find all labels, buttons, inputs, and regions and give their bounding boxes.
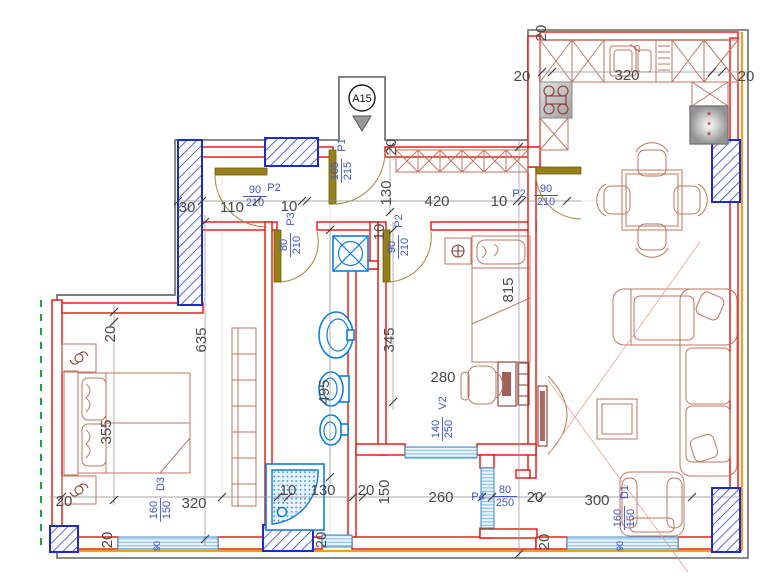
unit-label: A15	[352, 93, 372, 105]
dim-hall-wall: 30	[179, 199, 196, 216]
svg-text:105: 105	[329, 162, 341, 180]
svg-text:90: 90	[540, 183, 552, 195]
dimension-labels: 30 110 10 20 130 420 10 20 20 320 20 815…	[56, 25, 755, 551]
coffee-table	[597, 399, 637, 439]
dim-hall-gap2: 10	[491, 193, 508, 210]
svg-text:D1: D1	[619, 485, 631, 499]
desk	[498, 362, 516, 406]
dim-balcony-depth: 150	[376, 479, 393, 504]
dim-bath-jamb: 10	[280, 482, 297, 499]
svg-text:P2: P2	[512, 188, 525, 200]
dim-bedroom-wall: 20	[102, 326, 119, 343]
sofa-pillow	[689, 433, 719, 463]
svg-text:250: 250	[496, 497, 514, 509]
window-d3	[118, 537, 218, 549]
dining-chair	[597, 143, 708, 258]
dim-bedroom2-width: 280	[430, 369, 455, 386]
living-column-top	[712, 140, 740, 202]
dim-corridor-len: 635	[193, 327, 210, 352]
window-v2	[405, 447, 477, 458]
svg-text:210: 210	[246, 197, 264, 209]
svg-text:D3: D3	[155, 477, 167, 491]
svg-text:140: 140	[430, 420, 442, 438]
kitchen: * * *	[540, 40, 738, 150]
bathroom-sink	[319, 312, 354, 358]
svg-text:150: 150	[625, 509, 637, 527]
svg-text:90: 90	[249, 184, 261, 196]
dim-hall-seg: 110	[220, 199, 244, 216]
bidet	[320, 415, 348, 445]
svg-text:P1: P1	[336, 138, 348, 151]
svg-text:210: 210	[399, 238, 411, 256]
dim-kitchen-right: 20	[738, 68, 755, 85]
label-door-p2-corridor: 90 210 P2	[243, 182, 281, 209]
entry-sign: A15	[339, 77, 385, 140]
dim-balcony-width: 260	[428, 489, 453, 506]
corner-sofa	[613, 289, 737, 476]
dim-bath-wall: 20	[358, 482, 375, 499]
entry-shaft-column	[265, 138, 318, 166]
dim-hall-width: 130	[378, 180, 395, 205]
bedroom2	[445, 236, 530, 406]
svg-text:160: 160	[148, 501, 160, 519]
stove	[540, 82, 572, 118]
living-corner-column	[712, 488, 740, 552]
svg-text:90: 90	[386, 241, 398, 253]
dish-rack	[658, 46, 670, 70]
svg-text:*: *	[707, 130, 712, 142]
svg-text:150: 150	[161, 501, 173, 519]
dim-bedroom2-jamb: 10	[371, 224, 388, 241]
hall-wall-column	[178, 140, 202, 305]
dim-kitchen-left: 20	[514, 68, 531, 85]
dim-entry-wall: 20	[383, 139, 400, 156]
tv-sightline	[548, 242, 700, 455]
new-walls	[52, 32, 738, 549]
living-room	[538, 242, 737, 572]
dim-living-len: 815	[500, 277, 517, 302]
dim-shower-width: 130	[310, 482, 335, 499]
svg-text:80: 80	[278, 239, 290, 251]
fridge: * * *	[690, 106, 728, 144]
dim-bedroom2-len: 345	[381, 327, 398, 352]
tv	[538, 376, 567, 454]
dim-hall-len: 420	[424, 193, 449, 210]
washing-machine	[333, 236, 368, 271]
svg-text:V2: V2	[437, 396, 449, 409]
dim-living-win-jamb: 20	[536, 534, 553, 551]
dim-living-jamb: 20	[527, 489, 544, 506]
svg-text:P4: P4	[471, 491, 484, 503]
dim-bedroom-win-jamb: 20	[99, 532, 116, 549]
label-d1-sill: 90	[615, 541, 625, 551]
svg-text:P3: P3	[285, 212, 297, 225]
nightstand	[62, 344, 96, 372]
label-door-p3: 80 210 P3	[278, 212, 303, 257]
dim-bedroom-wall-left: 20	[56, 493, 73, 510]
wardrobe	[232, 328, 256, 506]
svg-text:215: 215	[342, 162, 354, 180]
svg-text:160: 160	[612, 509, 624, 527]
dining-table	[597, 143, 708, 258]
dim-bedroom-len: 320	[181, 495, 206, 512]
dim-bed-width: 355	[98, 419, 115, 444]
nightstand	[445, 238, 471, 264]
desk-chair	[461, 366, 503, 404]
svg-text:210: 210	[537, 196, 555, 208]
sofa-pillow	[694, 290, 726, 322]
label-window-d3: 160 150 D3	[148, 477, 173, 522]
dim-kitchen-run: 320	[614, 67, 639, 84]
double-bed	[64, 371, 190, 475]
svg-text:80: 80	[499, 484, 511, 496]
dim-living-width: 300	[584, 492, 609, 509]
floor-plan-canvas: * * *	[0, 0, 762, 582]
dim-bath-win-jamb: 20	[313, 532, 330, 549]
svg-text:P2: P2	[393, 214, 405, 227]
label-window-d1: 160 150 D1	[612, 485, 637, 530]
svg-text:250: 250	[443, 420, 455, 438]
dim-kitchen-wall-top: 20	[533, 25, 550, 42]
bedroom-corner-column	[50, 526, 78, 552]
label-window-v2: 140 250 V2	[430, 396, 455, 441]
floor-plan: * * *	[0, 0, 762, 582]
label-d3-sill: 90	[152, 541, 162, 551]
svg-text:210: 210	[291, 236, 303, 254]
svg-text:P2: P2	[267, 182, 280, 194]
dim-bath-len: 495	[316, 379, 333, 404]
